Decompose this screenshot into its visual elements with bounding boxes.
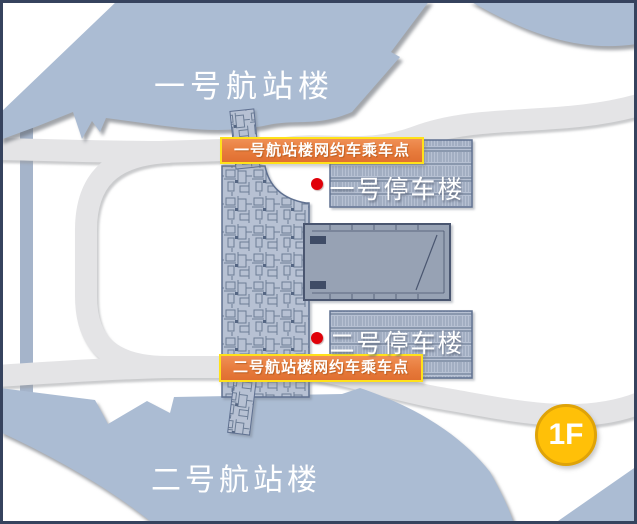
airport-map-canvas: 一号航站楼 二号航站楼 一号航站楼网约车乘车点 二号航站楼网约车乘车点 一号停车… bbox=[0, 0, 637, 524]
map-labels-overlay: 一号航站楼 二号航站楼 一号航站楼网约车乘车点 二号航站楼网约车乘车点 一号停车… bbox=[3, 3, 634, 521]
terminal1-title: 一号航站楼 bbox=[113, 61, 375, 106]
floor-1f-badge[interactable]: 1F bbox=[535, 404, 597, 466]
pickup-point1-label[interactable]: 一号航站楼网约车乘车点 bbox=[220, 137, 424, 164]
parking1-title: 一号停车楼 bbox=[312, 170, 482, 206]
parking2-title: 二号停车楼 bbox=[312, 324, 482, 360]
terminal2-title: 二号航站楼 bbox=[105, 455, 367, 499]
